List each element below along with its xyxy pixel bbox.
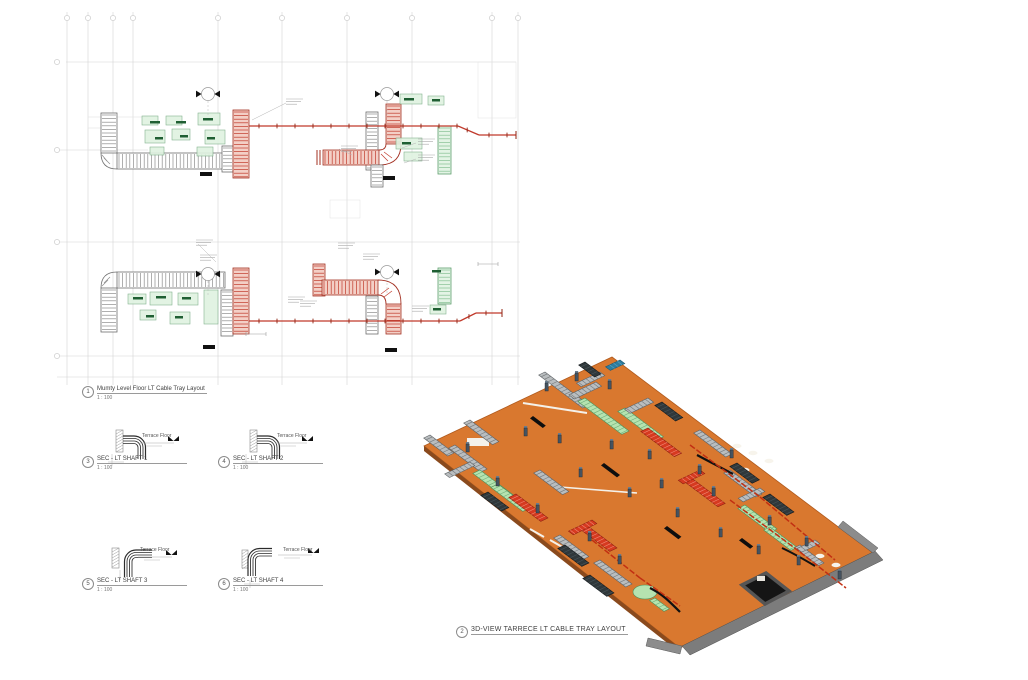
view-number-badge: 3	[82, 456, 94, 468]
section-scale: 1 : 100	[233, 465, 323, 471]
section-title: SEC - LT SHAFT 1	[97, 456, 187, 464]
section-details	[108, 430, 319, 588]
section-scale: 1 : 100	[233, 587, 323, 593]
caption-sec-lt-shaft-1: 3 SEC - LT SHAFT 1 1 : 100	[82, 456, 187, 471]
section-scale: 1 : 100	[97, 465, 187, 471]
view-number-badge: 5	[82, 578, 94, 590]
plan-scale: 1 : 100	[97, 395, 207, 401]
section-title: SEC - LT SHAFT 2	[233, 456, 323, 464]
level-label: Terrace Floor	[140, 547, 169, 553]
view-3d-title: 3D-VIEW TARRECE LT CABLE TRAY LAYOUT	[471, 626, 628, 635]
view-number-badge: 4	[218, 456, 230, 468]
plan-cable-trays	[101, 94, 516, 352]
view-number-badge: 1	[82, 386, 94, 398]
level-label: Terrace Floor	[142, 433, 171, 439]
caption-sec-lt-shaft-4: 6 SEC - LT SHAFT 4 1 : 100	[218, 578, 323, 593]
view-number-badge: 2	[456, 626, 468, 638]
section-title: SEC - LT SHAFT 3	[97, 578, 187, 586]
caption-sec-lt-shaft-2: 4 SEC - LT SHAFT 2 1 : 100	[218, 456, 323, 471]
caption-plan: 1 Mumty Level Floor LT Cable Tray Layout…	[82, 386, 207, 401]
view-3d	[424, 357, 883, 655]
level-label: Terrace Floor	[277, 433, 306, 439]
view-number-badge: 6	[218, 578, 230, 590]
section-scale: 1 : 100	[97, 587, 187, 593]
section-title: SEC - LT SHAFT 4	[233, 578, 323, 586]
caption-sec-lt-shaft-3: 5 SEC - LT SHAFT 3 1 : 100	[82, 578, 187, 593]
caption-3d-view: 2 3D-VIEW TARRECE LT CABLE TRAY LAYOUT	[456, 626, 628, 638]
level-label: Terrace Floor	[283, 547, 312, 553]
plan-grid	[54, 12, 520, 385]
drawing-sheet: 1 Mumty Level Floor LT Cable Tray Layout…	[0, 0, 1028, 680]
plan-title: Mumty Level Floor LT Cable Tray Layout	[97, 386, 207, 394]
